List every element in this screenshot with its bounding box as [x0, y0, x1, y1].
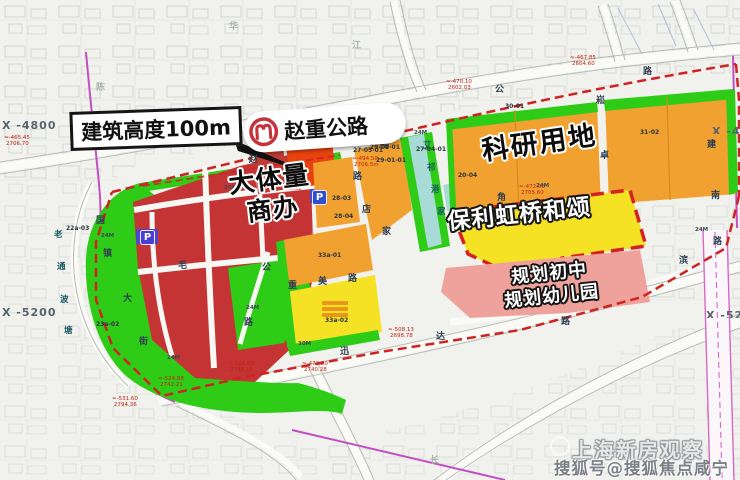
watermark-line2: 搜狐号@搜狐焦点咸宁站: [554, 455, 740, 480]
building-height-text: 建筑高度100m: [81, 111, 232, 146]
highway-name: 赵重公路: [283, 110, 369, 146]
coord-label-left-top: X -4800: [2, 119, 57, 132]
coord-label-right-top: X -48: [712, 125, 740, 134]
map-canvas: [0, 0, 740, 480]
yellow-parcel-stamp: [322, 301, 348, 319]
building-height-callout: 建筑高度100m: [69, 106, 242, 151]
coord-label-left-bottom: X -5200: [2, 306, 57, 319]
coord-label-right-bottom: X -520: [706, 309, 740, 318]
parking-icon: P: [312, 190, 327, 205]
metro-logo-icon: [247, 115, 280, 148]
parking-icon: P: [140, 230, 155, 245]
planning-map: 公路崧卓建南路滨店家角福路国镇大街毛公路重美路迅达路赵老通波塘艾祁港家陈华江长2…: [0, 0, 740, 480]
watermark-logo-icon: [550, 436, 570, 456]
